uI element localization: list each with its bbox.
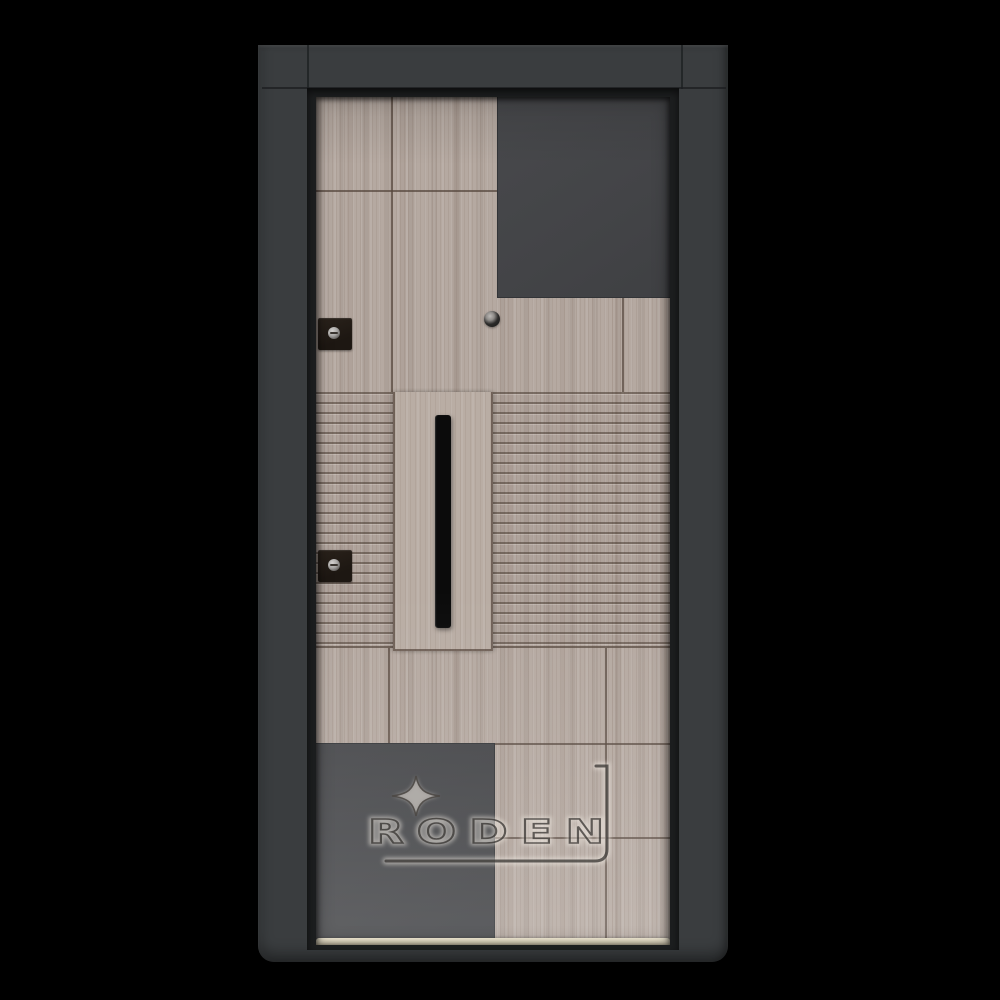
- lock-escutcheon-upper: [318, 318, 352, 350]
- product-photo: RODEN RODEN: [0, 0, 1000, 1000]
- brand-watermark: RODEN RODEN: [350, 745, 640, 885]
- lock-cylinder-icon: [328, 327, 340, 339]
- top-right-dark-panel: [497, 97, 670, 298]
- lock-escutcheon-lower: [318, 550, 352, 582]
- frame-head-joint-left: [307, 45, 309, 89]
- star-icon: [392, 776, 440, 816]
- frame-head-joint-right: [681, 45, 683, 89]
- door-threshold-sill: [316, 938, 670, 945]
- brand-name-text: RODEN: [368, 814, 617, 852]
- wood-panel-seam: [388, 648, 390, 743]
- door-handle-bar: [435, 415, 451, 628]
- wood-panel-seam: [316, 190, 497, 192]
- lock-cylinder-icon: [328, 559, 340, 571]
- peephole-icon: [484, 311, 500, 327]
- ribbed-groove-panel-left: [316, 392, 393, 646]
- wood-panel-seam: [622, 298, 624, 392]
- wood-panel-seam: [391, 97, 393, 392]
- ribbed-groove-panel-right: [493, 392, 670, 646]
- wood-panel-seam: [316, 646, 670, 648]
